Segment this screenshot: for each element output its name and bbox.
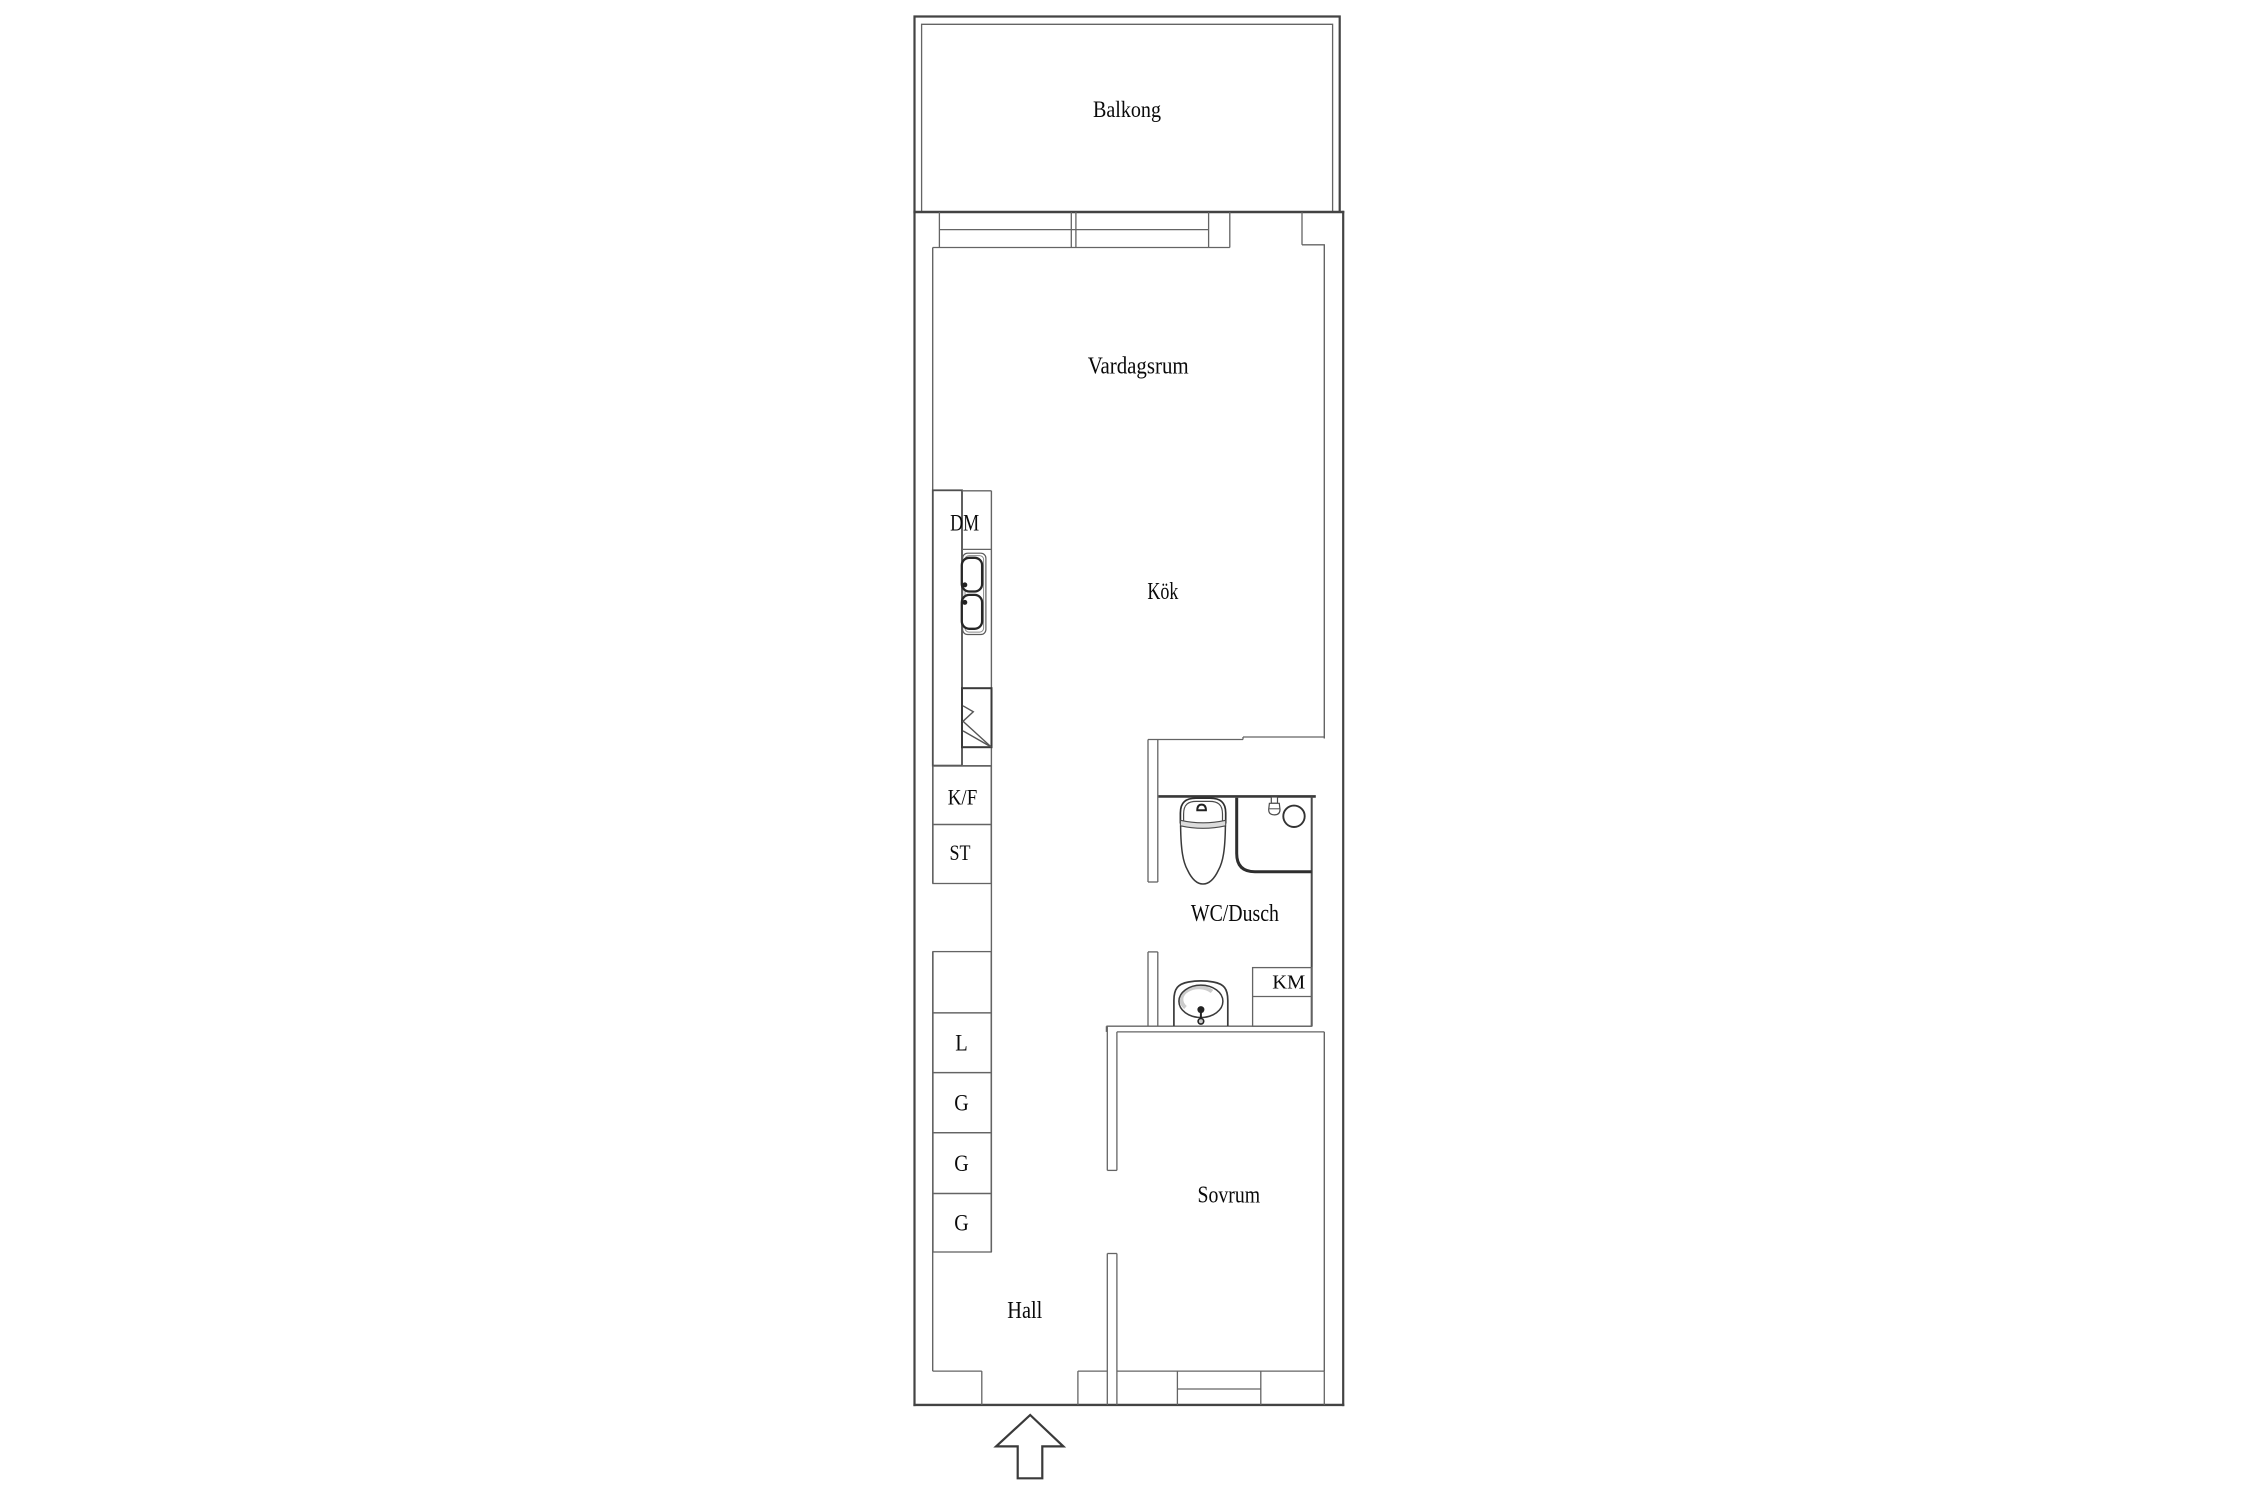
svg-text:Kök: Kök xyxy=(1147,579,1178,605)
svg-text:G: G xyxy=(954,1211,969,1236)
svg-text:KM: KM xyxy=(1272,972,1305,994)
svg-text:G: G xyxy=(954,1091,969,1116)
svg-text:Vardagsrum: Vardagsrum xyxy=(1088,354,1189,380)
svg-text:Balkong: Balkong xyxy=(1093,97,1161,122)
svg-text:Sovrum: Sovrum xyxy=(1198,1183,1261,1209)
svg-text:DM: DM xyxy=(950,511,979,536)
svg-text:L: L xyxy=(955,1030,968,1055)
svg-text:G: G xyxy=(954,1151,969,1176)
svg-text:ST: ST xyxy=(950,840,971,865)
svg-text:WC/Dusch: WC/Dusch xyxy=(1191,901,1279,927)
svg-text:K/F: K/F xyxy=(948,785,978,810)
svg-text:Hall: Hall xyxy=(1007,1298,1042,1324)
